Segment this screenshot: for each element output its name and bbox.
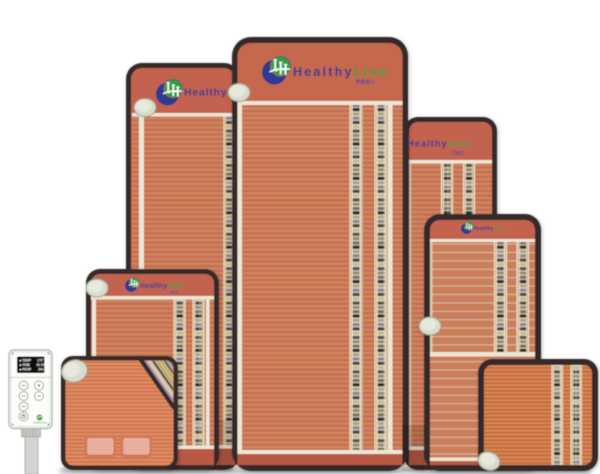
svg-text:TAO: TAO xyxy=(170,290,178,295)
svg-text:PRO+: PRO+ xyxy=(356,79,375,86)
svg-text:175°: 175° xyxy=(37,359,44,363)
svg-text:■ TEMP: ■ TEMP xyxy=(20,359,33,363)
svg-text:60:00: 60:00 xyxy=(37,363,45,367)
svg-text:TAO: TAO xyxy=(452,151,464,157)
svg-text:HealthyLine: HealthyLine xyxy=(407,139,471,150)
svg-text:■ TIME: ■ TIME xyxy=(20,363,30,367)
svg-text:HealthyLine: HealthyLine xyxy=(33,421,47,425)
svg-text:2Hz: 2Hz xyxy=(38,368,44,372)
svg-text:■ PEMF: ■ PEMF xyxy=(20,368,32,372)
svg-text:HealthyLine: HealthyLine xyxy=(293,65,388,79)
svg-text:HealthyLine: HealthyLine xyxy=(473,226,506,232)
